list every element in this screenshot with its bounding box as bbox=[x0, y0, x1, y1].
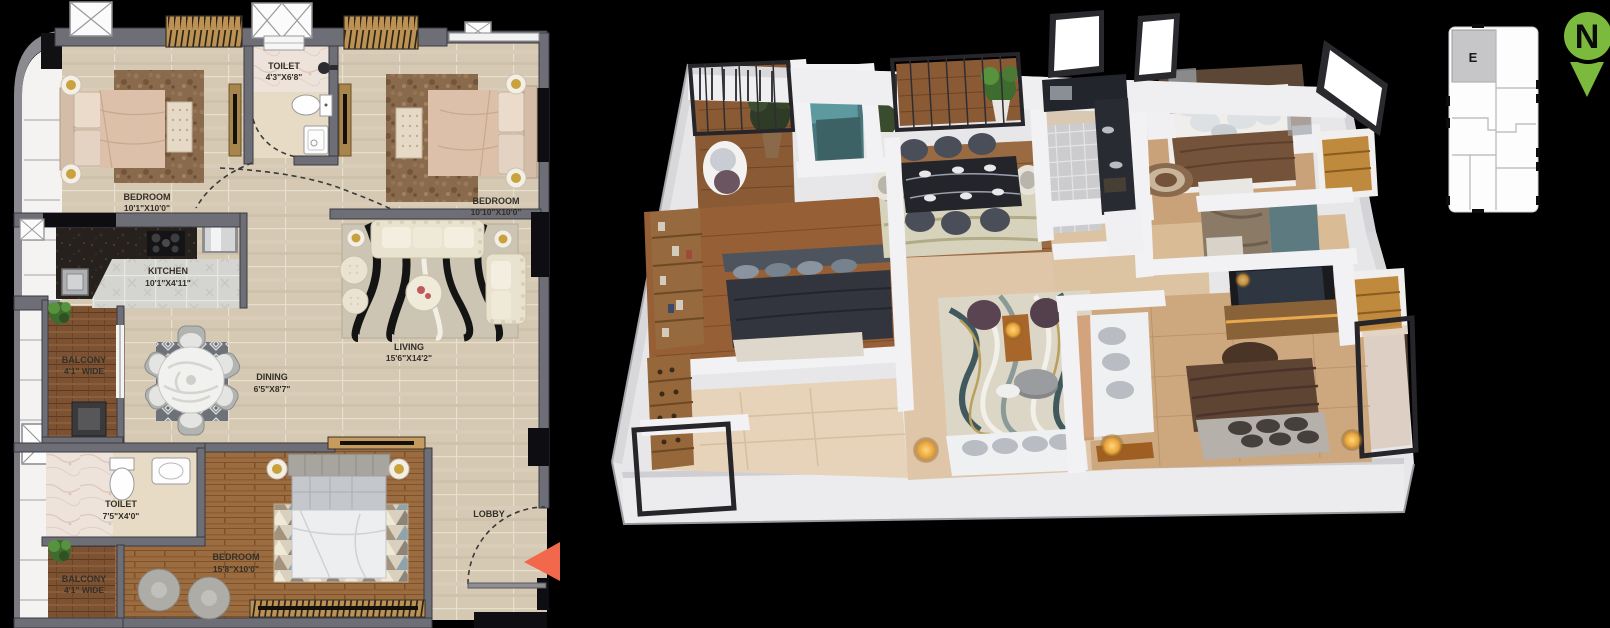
svg-text:15'6"X14'2": 15'6"X14'2" bbox=[386, 353, 432, 363]
svg-text:4'3"X6'8": 4'3"X6'8" bbox=[266, 72, 303, 82]
svg-text:10'1"X10'0": 10'1"X10'0" bbox=[124, 203, 170, 213]
svg-text:TOILET: TOILET bbox=[268, 61, 300, 71]
svg-text:N: N bbox=[1575, 18, 1600, 56]
svg-text:6'5"X8'7": 6'5"X8'7" bbox=[254, 384, 291, 394]
svg-text:BEDROOM: BEDROOM bbox=[124, 192, 171, 202]
svg-text:10'10"X10'0": 10'10"X10'0" bbox=[471, 207, 522, 217]
svg-text:7'5"X4'0": 7'5"X4'0" bbox=[103, 511, 140, 521]
svg-text:4'1" WIDE: 4'1" WIDE bbox=[64, 366, 104, 376]
svg-text:KITCHEN: KITCHEN bbox=[148, 266, 188, 276]
svg-text:DINING: DINING bbox=[256, 372, 288, 382]
svg-text:TOILET: TOILET bbox=[105, 499, 137, 509]
svg-text:E: E bbox=[1469, 50, 1478, 65]
svg-text:15'8"X10'0": 15'8"X10'0" bbox=[213, 564, 259, 574]
svg-text:4'1" WIDE: 4'1" WIDE bbox=[64, 585, 104, 595]
svg-text:BEDROOM: BEDROOM bbox=[473, 196, 520, 206]
svg-text:10'1"X4'11": 10'1"X4'11" bbox=[145, 278, 191, 288]
svg-text:LIVING: LIVING bbox=[394, 342, 424, 352]
svg-text:LOBBY: LOBBY bbox=[473, 509, 505, 519]
svg-text:BALCONY: BALCONY bbox=[62, 355, 107, 365]
svg-text:BEDROOM: BEDROOM bbox=[213, 552, 260, 562]
svg-text:BALCONY: BALCONY bbox=[62, 574, 107, 584]
